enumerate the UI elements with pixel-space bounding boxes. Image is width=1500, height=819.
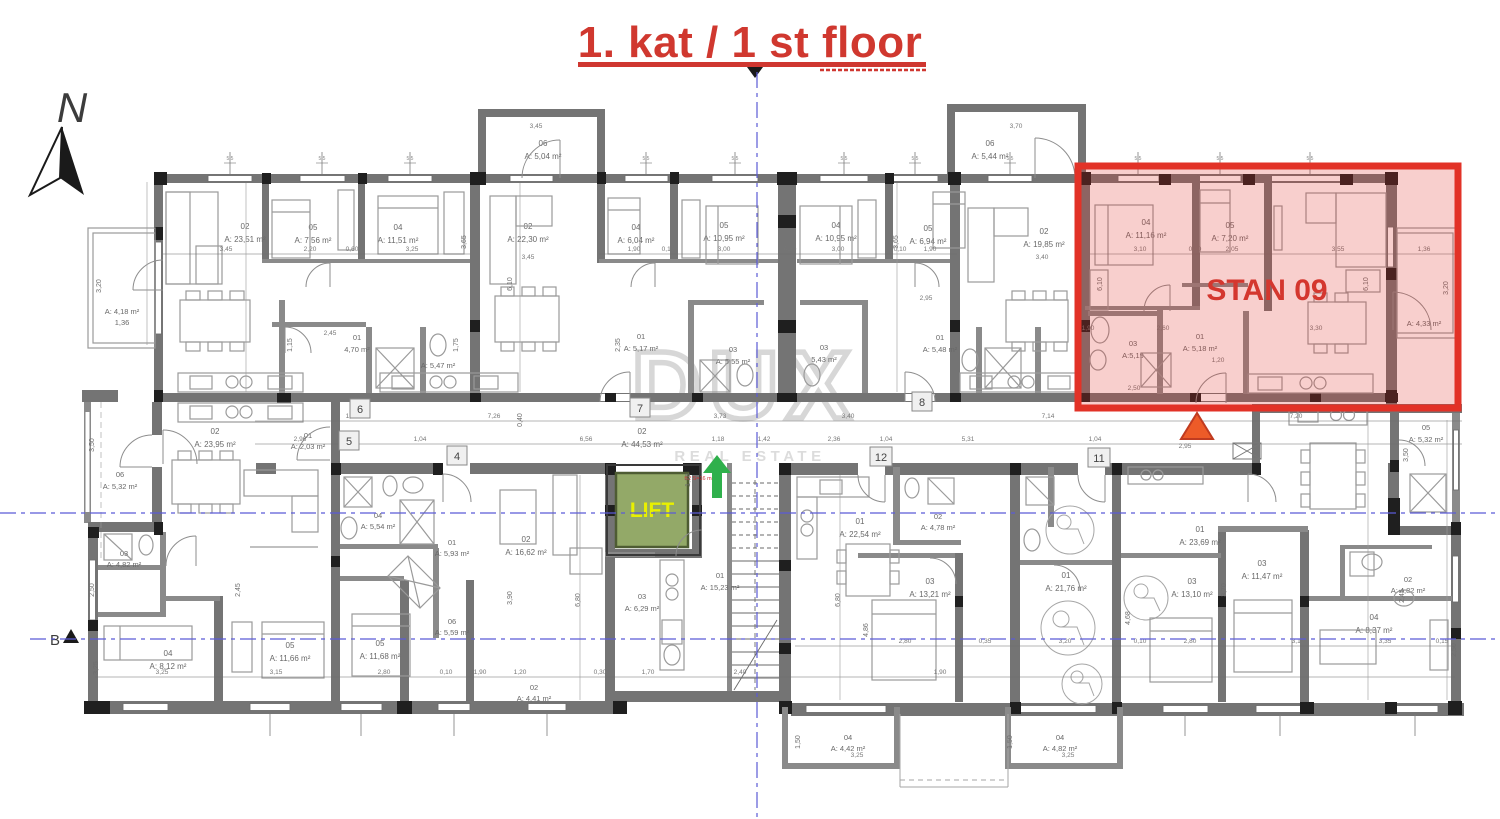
svg-text:7,20: 7,20	[1290, 413, 1303, 420]
svg-text:N: N	[57, 84, 88, 131]
svg-text:0,10: 0,10	[440, 669, 453, 676]
svg-text:1,04: 1,04	[1089, 436, 1102, 443]
svg-text:3,50: 3,50	[89, 438, 96, 452]
svg-text:2,96: 2,96	[294, 436, 307, 443]
svg-text:1,75: 1,75	[453, 338, 460, 352]
svg-text:1. kat / 1 st floor: 1. kat / 1 st floor	[578, 18, 922, 67]
svg-text:1,42: 1,42	[758, 436, 771, 443]
svg-text:5,31: 5,31	[962, 436, 975, 443]
svg-text:1,70: 1,70	[642, 669, 655, 676]
svg-text:6,56: 6,56	[580, 436, 593, 443]
svg-text:1,90: 1,90	[924, 246, 937, 253]
svg-text:3,15: 3,15	[270, 669, 283, 676]
svg-text:2,35: 2,35	[615, 338, 622, 352]
svg-text:2,95: 2,95	[920, 295, 933, 302]
svg-text:0,60: 0,60	[346, 246, 359, 253]
svg-text:3,25: 3,25	[1062, 752, 1075, 759]
svg-text:11: 11	[1093, 453, 1104, 465]
svg-text:4: 4	[454, 451, 460, 463]
svg-text:3,70: 3,70	[1221, 583, 1228, 597]
svg-text:3,45: 3,45	[522, 254, 535, 261]
svg-text:1,15: 1,15	[287, 338, 294, 352]
svg-text:7,14: 7,14	[1042, 413, 1055, 420]
svg-text:3,65: 3,65	[893, 235, 900, 249]
svg-text:6,80: 6,80	[575, 593, 582, 607]
svg-text:3,25: 3,25	[406, 246, 419, 253]
svg-text:2,50: 2,50	[1451, 643, 1458, 657]
svg-text:0,40: 0,40	[517, 413, 524, 427]
svg-text:STAN 09: STAN 09	[1206, 274, 1327, 307]
svg-text:2,50: 2,50	[89, 583, 96, 597]
svg-text:3,00: 3,00	[718, 246, 731, 253]
svg-text:12: 12	[875, 452, 887, 464]
svg-text:2,20: 2,20	[304, 246, 317, 253]
svg-text:5: 5	[346, 436, 352, 448]
svg-text:2,36: 2,36	[828, 436, 841, 443]
svg-text:A: 5,47 m²: A: 5,47 m²	[421, 361, 456, 370]
svg-text:2,45: 2,45	[1399, 589, 1406, 603]
svg-text:2,95: 2,95	[1179, 443, 1192, 450]
svg-text:3,90: 3,90	[507, 591, 514, 605]
svg-text:4,68: 4,68	[1125, 611, 1132, 625]
svg-text:3,50: 3,50	[1403, 448, 1410, 462]
svg-text:1,04: 1,04	[880, 436, 893, 443]
svg-text:B: B	[50, 632, 60, 649]
svg-text:3,45: 3,45	[530, 123, 543, 130]
svg-text:1,90: 1,90	[474, 669, 487, 676]
svg-text:4,86: 4,86	[863, 623, 870, 637]
svg-text:1,20: 1,20	[514, 669, 527, 676]
svg-text:7,26: 7,26	[488, 413, 501, 420]
svg-text:8: 8	[919, 397, 925, 409]
svg-text:1,90: 1,90	[934, 669, 947, 676]
svg-text:3,70: 3,70	[1010, 123, 1023, 130]
svg-text:1,18: 1,18	[685, 473, 692, 487]
svg-text:0,35: 0,35	[979, 638, 992, 645]
svg-text:6,80: 6,80	[835, 593, 842, 607]
svg-text:1,50: 1,50	[1007, 735, 1014, 749]
svg-text:2,45: 2,45	[235, 583, 242, 597]
svg-text:2,40: 2,40	[734, 669, 747, 676]
svg-text:2,45: 2,45	[324, 330, 337, 337]
svg-text:0,30: 0,30	[594, 669, 607, 676]
svg-text:3,25: 3,25	[93, 661, 100, 675]
svg-text:7: 7	[637, 403, 643, 415]
svg-text:3,45: 3,45	[220, 246, 233, 253]
svg-text:REAL ESTATE: REAL ESTATE	[674, 448, 825, 465]
svg-text:0,10: 0,10	[662, 246, 675, 253]
svg-text:3,40: 3,40	[1036, 254, 1049, 261]
svg-text:3,25: 3,25	[851, 752, 864, 759]
svg-text:3,40: 3,40	[842, 413, 855, 420]
svg-text:1,50: 1,50	[795, 735, 802, 749]
svg-text:1,04: 1,04	[414, 436, 427, 443]
svg-text:1,90: 1,90	[628, 246, 641, 253]
svg-text:3,00: 3,00	[832, 246, 845, 253]
svg-text:6: 6	[357, 404, 363, 416]
svg-text:3,20: 3,20	[96, 279, 103, 293]
svg-text:3,73: 3,73	[714, 413, 727, 420]
svg-text:1,18: 1,18	[712, 436, 725, 443]
svg-text:0,30: 0,30	[784, 246, 797, 253]
svg-text:LIFT: LIFT	[630, 499, 674, 522]
svg-text:3,65: 3,65	[461, 235, 468, 249]
svg-text:6,10: 6,10	[507, 277, 514, 291]
svg-text:2,80: 2,80	[378, 669, 391, 676]
svg-text:3,25: 3,25	[156, 669, 169, 676]
